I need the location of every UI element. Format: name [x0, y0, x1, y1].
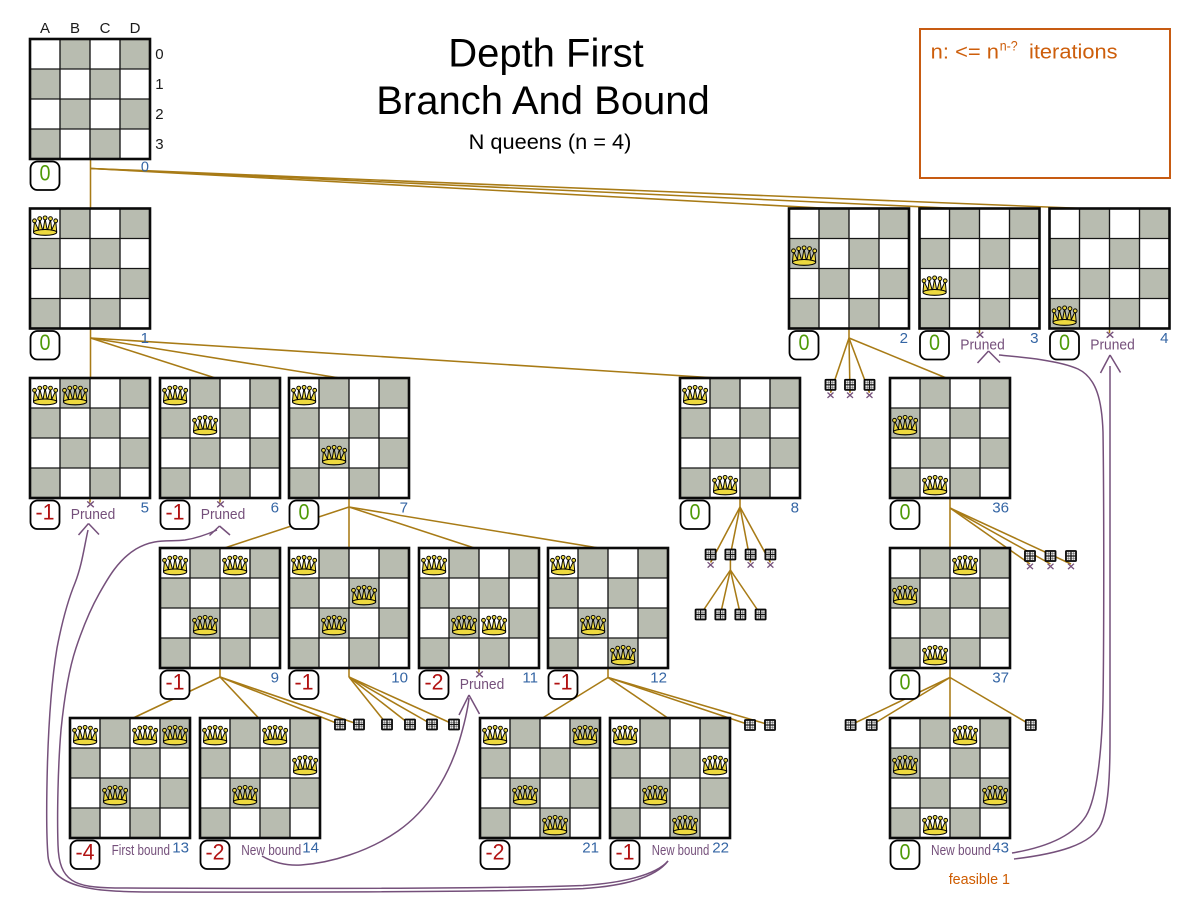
svg-text:0: 0	[141, 159, 149, 175]
svg-text:-1: -1	[166, 670, 185, 695]
svg-text:-4: -4	[76, 840, 95, 865]
svg-text:0: 0	[799, 330, 810, 355]
svg-text:C: C	[100, 20, 111, 37]
svg-text:1: 1	[155, 76, 163, 93]
svg-text:Pruned: Pruned	[201, 507, 246, 523]
svg-text:11: 11	[522, 670, 538, 687]
svg-text:Pruned: Pruned	[1090, 338, 1135, 354]
svg-text:B: B	[70, 20, 80, 37]
svg-text:New bound: New bound	[241, 843, 301, 859]
svg-text:0: 0	[690, 500, 701, 525]
svg-text:0: 0	[299, 500, 310, 525]
svg-text:13: 13	[172, 840, 189, 857]
svg-text:First bound: First bound	[112, 843, 170, 859]
svg-text:0: 0	[900, 670, 911, 695]
svg-text:feasible 1: feasible 1	[949, 872, 1010, 888]
svg-text:-1: -1	[554, 670, 573, 695]
svg-text:-2: -2	[425, 670, 444, 695]
svg-text:0: 0	[1059, 330, 1070, 355]
svg-text:-1: -1	[616, 840, 635, 865]
svg-text:-2: -2	[206, 840, 225, 865]
svg-text:Branch And Bound: Branch And Bound	[376, 79, 710, 123]
svg-text:n: <= n: n: <= n	[931, 41, 999, 64]
svg-text:3: 3	[1030, 330, 1038, 347]
svg-text:-2: -2	[486, 840, 505, 865]
svg-text:Pruned: Pruned	[460, 677, 505, 693]
svg-text:0: 0	[40, 330, 51, 355]
svg-text:5: 5	[141, 500, 149, 517]
svg-text:37: 37	[992, 670, 1009, 687]
svg-text:12: 12	[650, 670, 667, 687]
svg-text:3: 3	[155, 136, 163, 153]
svg-text:Pruned: Pruned	[71, 507, 116, 523]
svg-text:-1: -1	[36, 500, 55, 525]
svg-text:0: 0	[900, 500, 911, 525]
svg-text:A: A	[40, 20, 50, 37]
svg-text:-1: -1	[295, 670, 314, 695]
svg-text:Depth First: Depth First	[448, 32, 644, 76]
svg-text:Pruned: Pruned	[960, 338, 1005, 354]
svg-text:0: 0	[900, 840, 911, 865]
svg-text:0: 0	[155, 46, 163, 63]
svg-text:43: 43	[992, 840, 1009, 857]
svg-text:7: 7	[400, 500, 408, 517]
svg-text:D: D	[130, 20, 141, 37]
svg-text:22: 22	[712, 840, 729, 857]
svg-text:n-?: n-?	[1000, 39, 1018, 54]
svg-text:0: 0	[40, 161, 51, 186]
svg-text:-1: -1	[166, 500, 185, 525]
svg-text:14: 14	[302, 840, 319, 857]
svg-text:New bound: New bound	[652, 843, 710, 859]
svg-text:2: 2	[155, 106, 163, 123]
svg-text:New bound: New bound	[931, 843, 991, 859]
svg-text:21: 21	[582, 840, 599, 857]
svg-text:1: 1	[141, 330, 149, 347]
svg-text:2: 2	[900, 330, 908, 347]
svg-text:0: 0	[929, 330, 940, 355]
svg-text:9: 9	[271, 670, 279, 687]
svg-text:36: 36	[992, 500, 1009, 517]
svg-text:6: 6	[271, 500, 279, 517]
svg-text:iterations: iterations	[1029, 41, 1118, 64]
svg-text:N queens (n = 4): N queens (n = 4)	[469, 130, 632, 154]
svg-text:4: 4	[1160, 330, 1168, 347]
svg-text:10: 10	[391, 670, 408, 687]
svg-text:8: 8	[791, 500, 799, 517]
